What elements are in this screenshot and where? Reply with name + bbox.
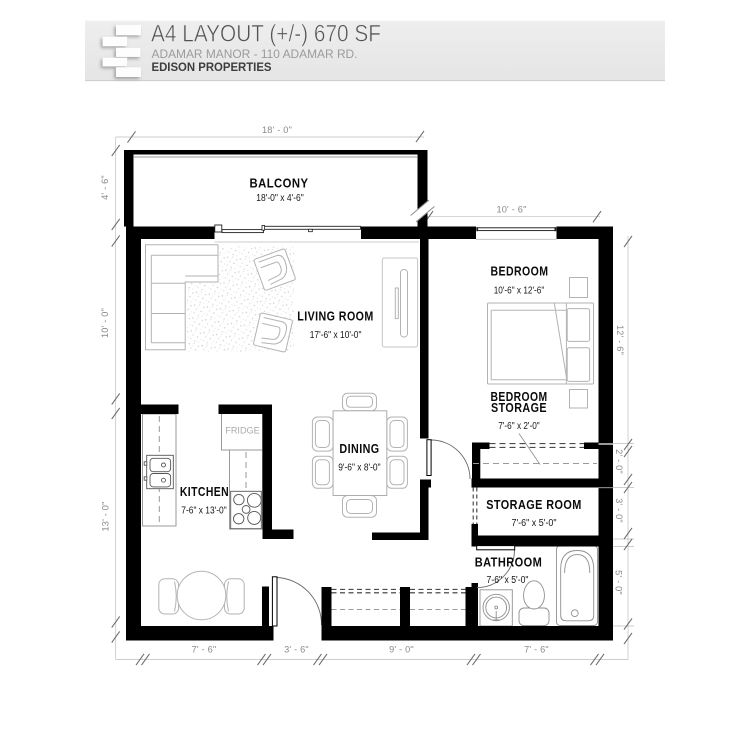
svg-text:7'-6" x 2'-0": 7'-6" x 2'-0" xyxy=(498,421,540,432)
svg-text:BEDROOM: BEDROOM xyxy=(491,264,549,278)
svg-text:STORAGE ROOM: STORAGE ROOM xyxy=(486,498,582,512)
svg-text:7' - 6": 7' - 6" xyxy=(524,645,549,655)
svg-text:7'-6" x 5'-0": 7'-6" x 5'-0" xyxy=(512,518,557,529)
svg-text:DINING: DINING xyxy=(339,442,379,456)
svg-text:BALCONY: BALCONY xyxy=(250,176,309,190)
svg-text:BATHROOM: BATHROOM xyxy=(475,555,543,569)
svg-text:18'-0" x 4'-6": 18'-0" x 4'-6" xyxy=(256,193,304,204)
svg-text:EDISON PROPERTIES: EDISON PROPERTIES xyxy=(152,61,272,74)
svg-text:2' - 0": 2' - 0" xyxy=(614,449,624,474)
svg-text:10' - 6": 10' - 6" xyxy=(496,205,526,215)
svg-text:9' - 0": 9' - 0" xyxy=(389,645,414,655)
svg-text:10'-6" x 12'-6": 10'-6" x 12'-6" xyxy=(494,286,545,297)
svg-text:7-6" x 13'-0": 7-6" x 13'-0" xyxy=(181,506,227,517)
svg-text:3' - 0": 3' - 0" xyxy=(614,498,624,523)
svg-text:LIVING ROOM: LIVING ROOM xyxy=(297,310,374,324)
svg-text:17'-6" x 10'-0": 17'-6" x 10'-0" xyxy=(310,330,362,341)
svg-text:12' - 6": 12' - 6" xyxy=(615,325,625,355)
svg-text:FRIDGE: FRIDGE xyxy=(225,426,260,437)
svg-text:7-6" x 5'-0": 7-6" x 5'-0" xyxy=(487,575,529,586)
svg-text:10' - 0": 10' - 0" xyxy=(100,308,110,338)
svg-text:ADAMAR MANOR - 110 ADAMAR RD.: ADAMAR MANOR - 110 ADAMAR RD. xyxy=(152,48,358,61)
svg-text:13' - 0": 13' - 0" xyxy=(101,501,111,531)
svg-text:9'-6" x 8'-0": 9'-6" x 8'-0" xyxy=(338,463,381,474)
svg-text:KITCHEN: KITCHEN xyxy=(180,485,229,499)
svg-text:4' - 6": 4' - 6" xyxy=(100,175,110,200)
svg-text:7' - 6": 7' - 6" xyxy=(192,645,217,655)
svg-text:5' - 0": 5' - 0" xyxy=(614,570,624,595)
svg-text:18' - 0": 18' - 0" xyxy=(262,125,292,135)
svg-text:STORAGE: STORAGE xyxy=(491,401,547,415)
svg-text:A4 LAYOUT (+/-) 670 SF: A4 LAYOUT (+/-) 670 SF xyxy=(151,21,381,48)
svg-text:3' - 6": 3' - 6" xyxy=(284,645,309,655)
